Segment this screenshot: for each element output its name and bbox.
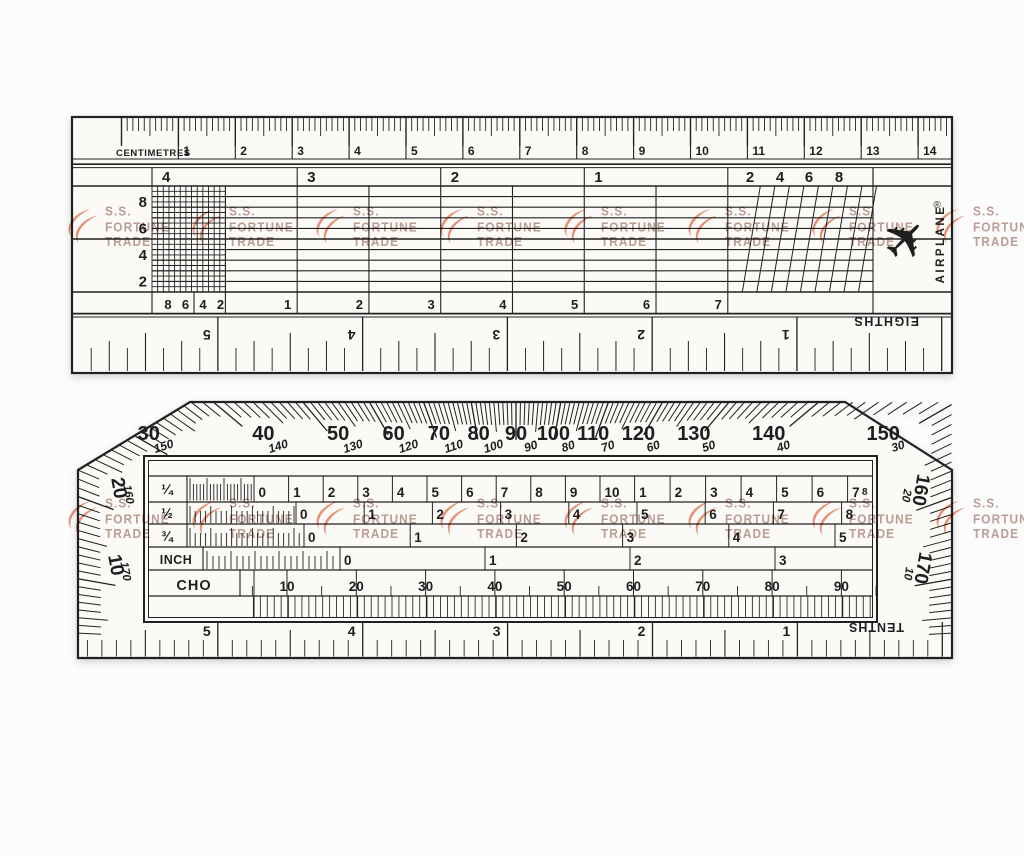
- quarter-number: 6: [466, 485, 474, 500]
- quarter-number-b: 5: [781, 485, 789, 500]
- tenths-number: 5: [203, 623, 211, 639]
- row-label-inch: INCH: [160, 553, 193, 567]
- quarter-number: 7: [501, 485, 509, 500]
- inch-number: 0: [344, 553, 352, 568]
- half-number: 8: [846, 507, 854, 522]
- tenths-number: 4: [348, 623, 356, 639]
- tenths-number: 1: [783, 623, 791, 639]
- row-label-half: ½: [161, 505, 173, 521]
- quarter-number-b: 4: [746, 485, 754, 500]
- quarter-number: 3: [362, 485, 370, 500]
- cho-number: 60: [626, 579, 641, 594]
- cho-number: 70: [695, 579, 710, 594]
- quarter-number-b: 8: [862, 487, 868, 498]
- half-number: 5: [641, 507, 649, 522]
- half-number: 4: [573, 507, 581, 522]
- half-number: 3: [505, 507, 513, 522]
- quarter-number: 4: [397, 485, 405, 500]
- threequarter-number: 4: [733, 530, 741, 545]
- quarter-number: 5: [432, 485, 440, 500]
- inch-number: 2: [634, 553, 642, 568]
- photo-stage: 1234567891011121314432124688642864212345…: [0, 0, 1024, 856]
- half-number: 1: [368, 507, 376, 522]
- inch-number: 1: [489, 553, 497, 568]
- tenths-label: TENTHS: [848, 620, 904, 634]
- threequarter-number: 1: [414, 530, 422, 545]
- half-number: 6: [709, 507, 717, 522]
- tenths-number: 2: [638, 623, 646, 639]
- quarter-number-b: 2: [675, 485, 683, 500]
- quarter-number: 0: [259, 485, 267, 500]
- quarter-number-b: 6: [817, 485, 825, 500]
- quarter-number: 9: [570, 485, 578, 500]
- tenths-number: 3: [493, 623, 501, 639]
- threequarter-number: 5: [839, 530, 847, 545]
- threequarter-number: 0: [308, 530, 316, 545]
- quarter-number: 8: [535, 485, 543, 500]
- cho-number: 10: [279, 579, 294, 594]
- cho-number: 40: [487, 579, 502, 594]
- threequarter-number: 2: [520, 530, 528, 545]
- quarter-number: 10: [605, 485, 620, 500]
- degree-secondary: 20: [899, 487, 913, 503]
- half-number: 7: [777, 507, 785, 522]
- row-label-threequarter: ¾: [161, 528, 174, 544]
- cho-number: 50: [557, 579, 572, 594]
- threequarter-number: 3: [627, 530, 635, 545]
- cho-number: 30: [418, 579, 433, 594]
- quarter-number: 2: [328, 485, 336, 500]
- bottom-ruler: 1017020160301504014050130601207011080100…: [0, 0, 1024, 856]
- bottom-ruler-artwork: 1017020160301504014050130601207011080100…: [78, 402, 952, 658]
- quarter-number-b: 1: [639, 485, 647, 500]
- half-number: 2: [436, 507, 444, 522]
- quarter-number-b: 7: [852, 485, 860, 500]
- cho-label: CHO: [176, 578, 211, 594]
- cho-number: 80: [765, 579, 780, 594]
- half-number: 0: [300, 507, 308, 522]
- cho-number: 20: [349, 579, 364, 594]
- quarter-number-b: 3: [710, 485, 718, 500]
- inch-number: 3: [779, 553, 787, 568]
- row-label-quarter: ¼: [161, 481, 174, 497]
- cho-number: 90: [834, 579, 849, 594]
- quarter-number: 1: [293, 485, 301, 500]
